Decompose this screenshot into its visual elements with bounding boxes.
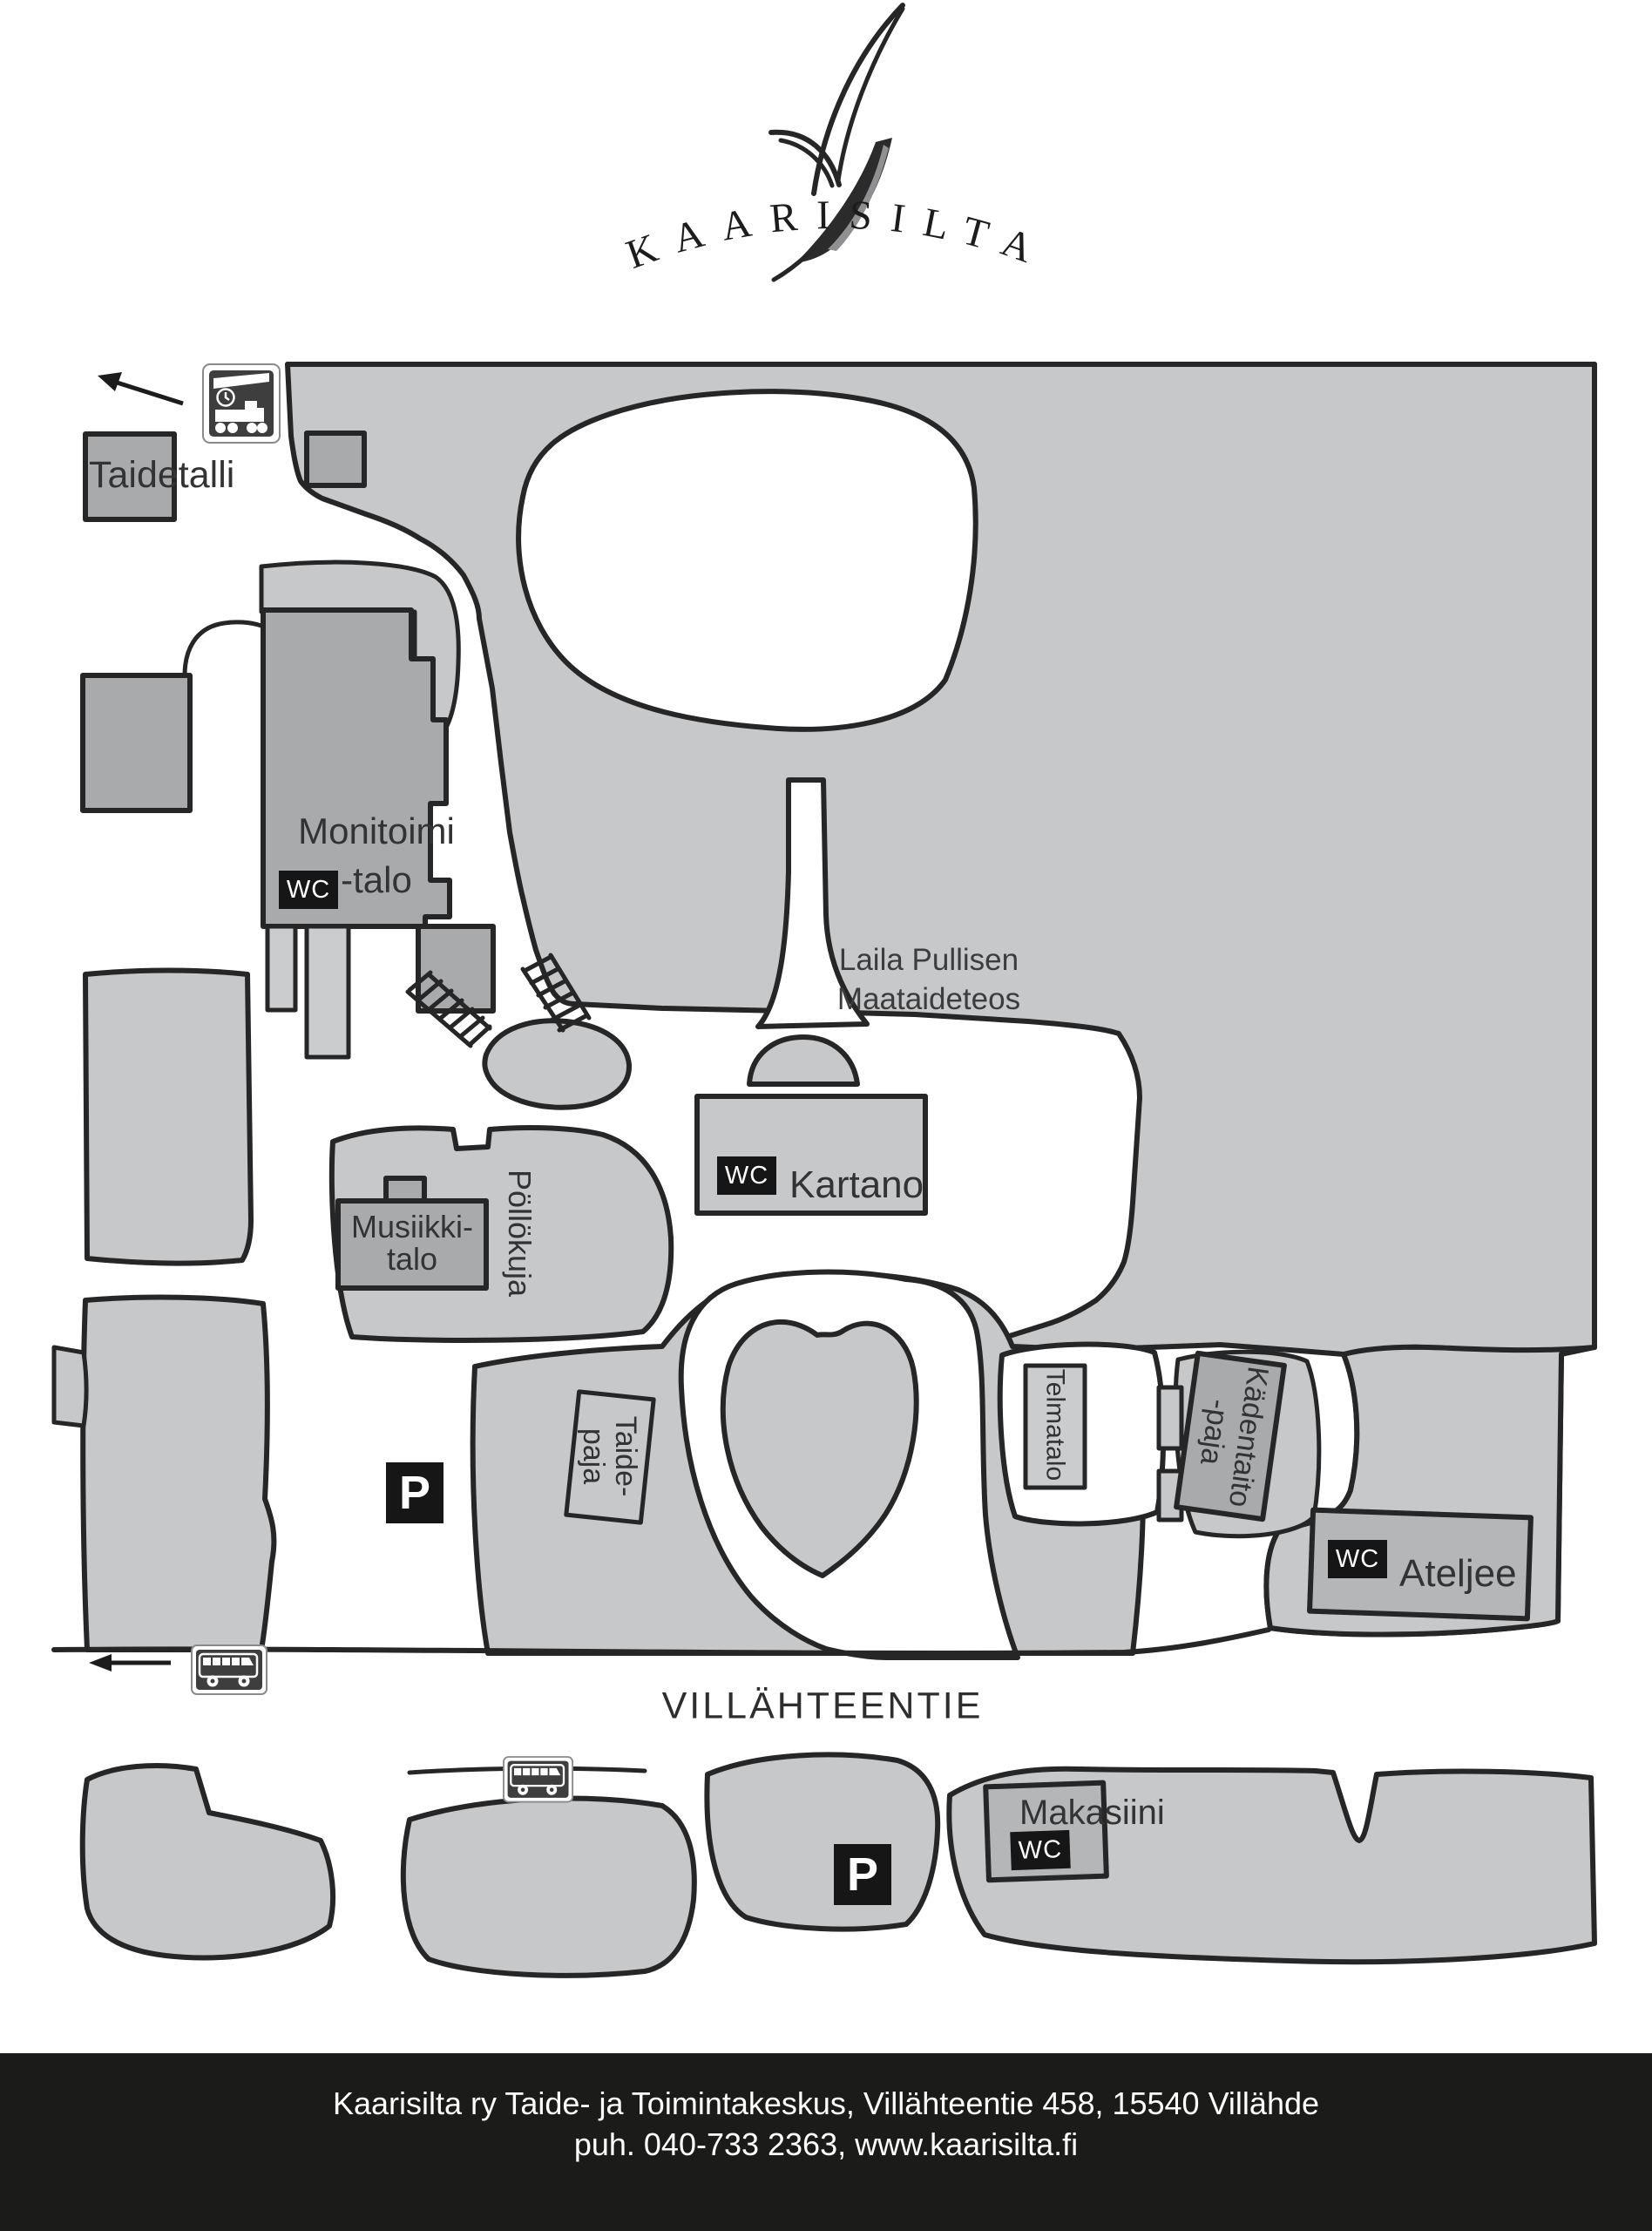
wc-badge-makasiini: WC <box>1010 1830 1070 1870</box>
label-musiikki-line1: Musiikki- <box>351 1210 473 1243</box>
field-left-top <box>85 971 251 1264</box>
label-villahteentie: VILLÄHTEENTIE <box>662 1685 984 1726</box>
path-curve-left-block <box>185 622 261 675</box>
footer-address: Kaarisilta ry Taide- ja Toimintakeskus, … <box>0 2083 1652 2124</box>
svg-text:KAARISILTA: KAARISILTA <box>620 193 1055 278</box>
building-left-block <box>83 675 190 810</box>
label-ateljee: Ateljee <box>1399 1553 1517 1595</box>
field-bottom-3 <box>707 1754 938 1929</box>
label-taidepaja-line1: Taide- <box>609 1416 641 1497</box>
courtyard-tab-1 <box>1159 1387 1181 1448</box>
lake <box>518 391 976 729</box>
field-left-bottom <box>83 1298 274 1650</box>
label-musiikkitalo: Musiikki- talo <box>351 1210 473 1275</box>
mound <box>484 1021 629 1107</box>
wc-badge-ateljee: WC <box>1328 1540 1387 1578</box>
dome-above-kartano <box>749 1037 857 1084</box>
kaarisilta-map-page: KAARISILTA <box>0 0 1652 2231</box>
train-station-sign-icon <box>203 364 280 443</box>
label-kartano: Kartano <box>789 1164 924 1206</box>
label-taidepaja-line2: paja <box>577 1416 609 1497</box>
parking-badge-south: P <box>834 1844 891 1905</box>
bus-stop-sign-icon <box>192 1645 267 1694</box>
path-leg-1 <box>267 926 295 1010</box>
label-laila-line1: Laila Pullisen <box>837 940 1020 980</box>
label-pollokuja: Pöllökuja <box>502 1170 537 1297</box>
bus-stop-sign-icon-2 <box>504 1757 572 1802</box>
label-laila-pullinen: Laila Pullisen Maataideteos <box>837 940 1020 1019</box>
path-leg-2 <box>307 926 349 1057</box>
field-bottom-1 <box>83 1766 333 1957</box>
building-small-north <box>307 433 364 485</box>
logo-text: KAARISILTA <box>620 193 1055 278</box>
label-telmatalo: Telmatalo <box>1041 1369 1070 1481</box>
campus-map: KAARISILTA <box>0 0 1652 2231</box>
label-monitoimi-line1: Monitoimi <box>298 807 455 856</box>
wc-badge-kartano: WC <box>717 1156 776 1195</box>
label-makasiini: Makasiini <box>1019 1794 1165 1832</box>
label-laila-line2: Maataideteos <box>837 980 1020 1019</box>
field-left-wedge <box>54 1347 86 1426</box>
footer-bar: Kaarisilta ry Taide- ja Toimintakeskus, … <box>0 2053 1652 2231</box>
label-musiikki-line2: talo <box>351 1243 473 1275</box>
arrow-west-icon <box>89 1654 171 1672</box>
field-bottom-2 <box>403 1799 694 1976</box>
wc-badge-monitoimi: WC <box>279 871 338 909</box>
label-taidetalli: Taidetalli <box>89 455 234 496</box>
footer-contact: puh. 040-733 2363, www.kaarisilta.fi <box>0 2124 1652 2165</box>
arrow-northwest-icon <box>98 372 183 403</box>
label-taidepaja: Taide- paja <box>577 1416 641 1497</box>
parking-badge-west: P <box>386 1462 443 1523</box>
